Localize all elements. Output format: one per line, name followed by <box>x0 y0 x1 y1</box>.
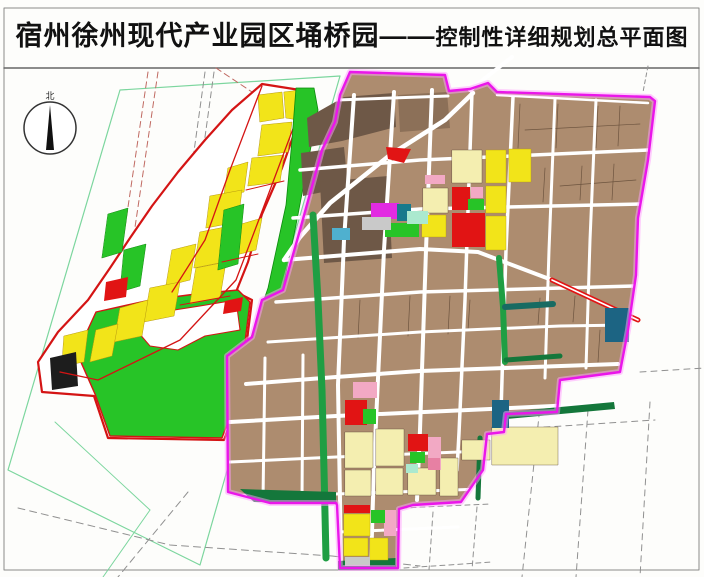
parcel-yellow <box>258 122 292 156</box>
parcel-yellow <box>258 92 284 122</box>
parcel-cream <box>440 458 458 496</box>
road <box>302 355 303 500</box>
parcel-mint <box>406 464 418 473</box>
map-canvas: 北 <box>0 0 704 577</box>
parcel-cream <box>452 150 482 183</box>
parcel-gray <box>345 557 370 566</box>
parcel-cream <box>376 468 403 495</box>
dashed-road <box>640 402 650 577</box>
dashed-road <box>404 562 492 568</box>
parcel-green <box>371 510 385 523</box>
dashed-road <box>472 507 477 570</box>
parcel-red <box>408 434 428 451</box>
green-belt-teal <box>505 304 553 307</box>
black-parcel <box>50 352 78 390</box>
page-title: 宿州徐州现代产业园区埇桥园——控制性详细规划总平面图 <box>0 14 704 53</box>
parcel-red <box>452 187 470 210</box>
planning-sheet: 宿州徐州现代产业园区埇桥园——控制性详细规划总平面图 北 <box>0 0 704 577</box>
parcel-yellow <box>486 186 506 213</box>
parcel-yellow <box>344 514 370 536</box>
parcel-magenta <box>371 203 399 219</box>
parcel-rose <box>428 458 440 470</box>
parcel-yellow <box>344 538 368 556</box>
parcel-cream <box>345 432 373 468</box>
parcel-pink <box>471 187 483 198</box>
parcel-cream <box>345 470 371 496</box>
dashed-road <box>576 410 588 577</box>
compass-label: 北 <box>45 91 54 101</box>
dashed-road <box>18 508 332 556</box>
parcel-gray <box>362 217 391 230</box>
parcel-yellow <box>509 149 531 182</box>
parcel-green <box>410 452 425 463</box>
parcel-pink <box>425 175 445 184</box>
parcel-green <box>468 199 484 210</box>
parcel-pink <box>353 382 377 398</box>
dashed-road <box>643 66 648 92</box>
parcel-lightblue <box>332 228 350 240</box>
dashed-road <box>640 368 704 372</box>
parcel-yellow <box>248 155 284 186</box>
road <box>263 358 265 500</box>
parcel-mint <box>407 211 428 224</box>
parcel-pink <box>384 510 396 536</box>
parcel-cream <box>423 188 448 213</box>
parcel-yellow <box>486 150 506 183</box>
title-main: 宿州徐州现代产业园区埇桥园—— <box>15 21 435 51</box>
title-sub: 控制性详细规划总平面图 <box>435 25 688 50</box>
parcel-red <box>344 505 370 513</box>
parcel-green <box>363 409 376 424</box>
parcel-cream <box>376 429 404 466</box>
parcel-yellow <box>370 538 388 560</box>
parcel-yellow <box>486 216 506 250</box>
parcel-red <box>452 213 485 247</box>
dashed-road <box>429 512 433 570</box>
